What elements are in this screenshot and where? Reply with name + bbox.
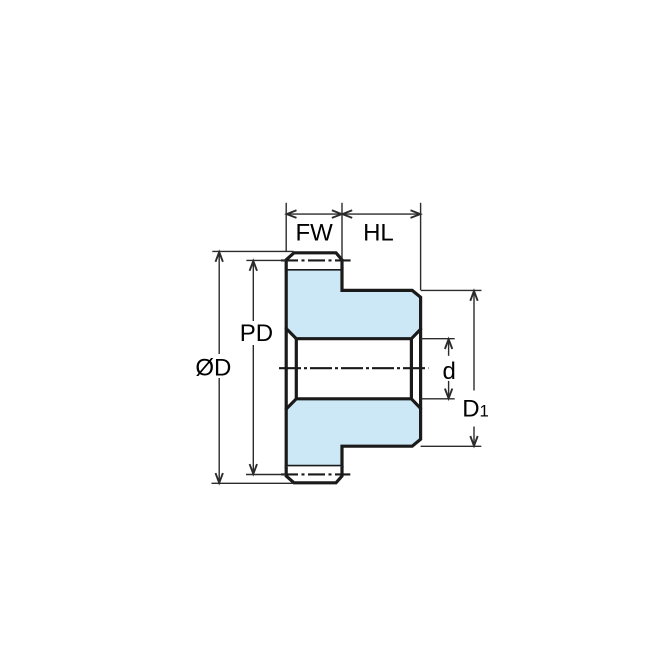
svg-text:d: d [443, 358, 456, 385]
svg-text:ØD: ØD [195, 354, 231, 381]
svg-text:FW: FW [296, 220, 334, 247]
svg-text:PD: PD [240, 320, 273, 347]
svg-text:HL: HL [363, 220, 394, 247]
